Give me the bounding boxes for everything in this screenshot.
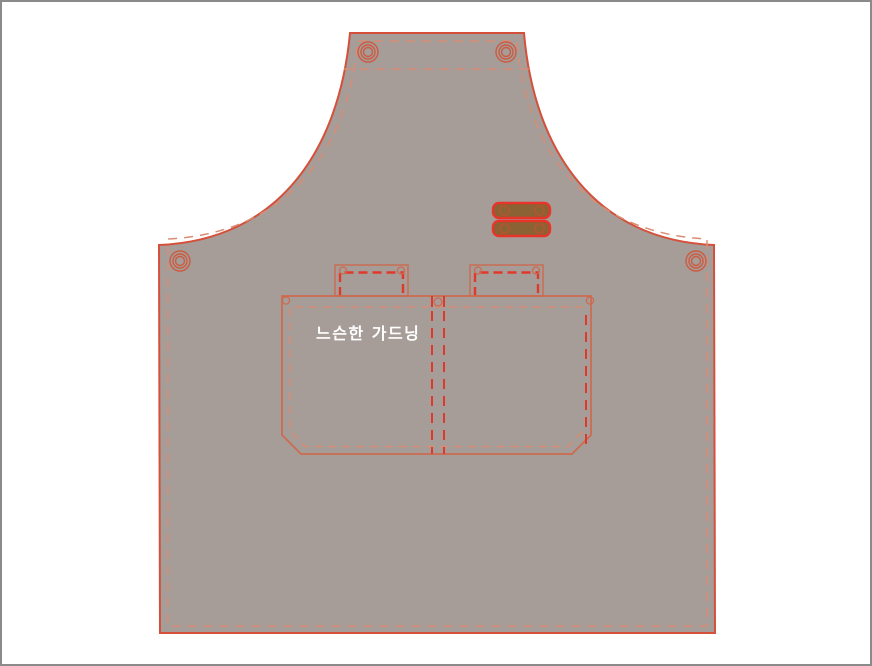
apron-pattern-canvas: 느슨한 가드닝 — [0, 0, 872, 666]
pocket-label: 느슨한 가드닝 — [316, 320, 420, 344]
apron-pattern-svg — [2, 2, 872, 666]
apron-shape — [159, 33, 715, 633]
leather-strap-top — [493, 203, 550, 218]
leather-strap-bottom — [493, 221, 550, 236]
